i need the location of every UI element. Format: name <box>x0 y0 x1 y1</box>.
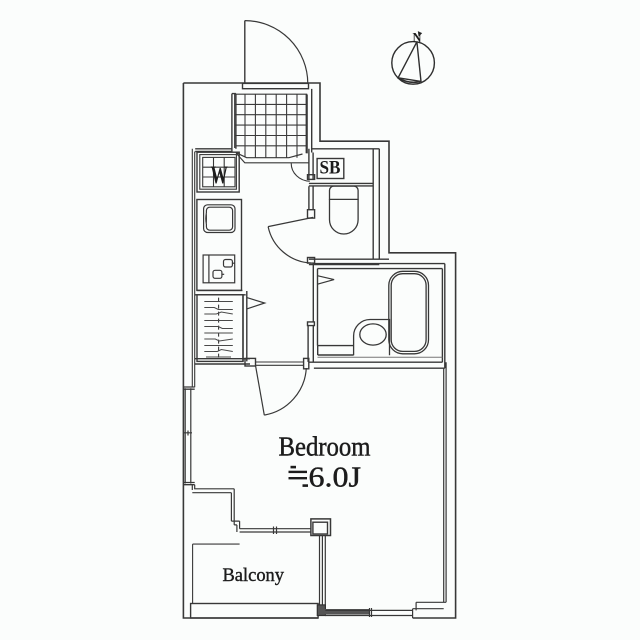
svg-text:Balcony: Balcony <box>223 566 285 586</box>
svg-text:W: W <box>211 162 229 189</box>
svg-text:Bedroom: Bedroom <box>279 432 371 462</box>
svg-text:6.0J: 6.0J <box>309 461 362 493</box>
svg-text:SB: SB <box>320 158 341 179</box>
svg-text:N: N <box>413 31 422 46</box>
